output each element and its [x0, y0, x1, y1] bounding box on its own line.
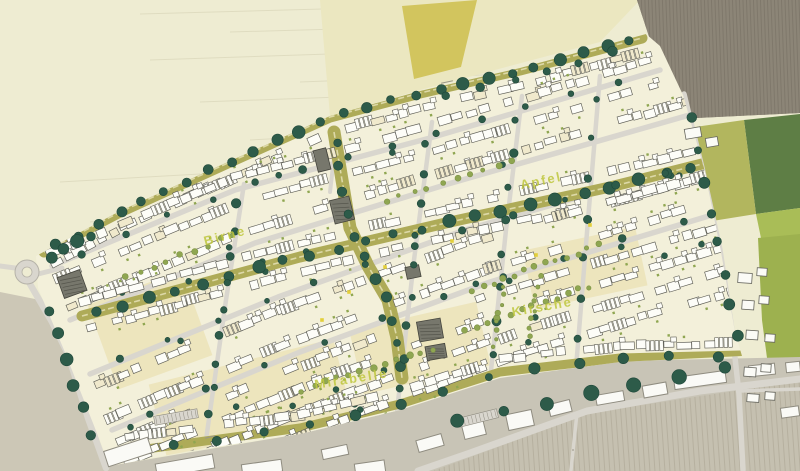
tree: [360, 252, 369, 261]
tree: [117, 207, 127, 217]
building: [499, 353, 513, 362]
tree: [721, 270, 730, 279]
tree: [117, 301, 128, 312]
tree: [362, 261, 368, 267]
tree: [456, 77, 469, 90]
tree: [672, 370, 687, 385]
house: [478, 224, 490, 235]
rowhouse: [655, 341, 659, 351]
tree: [686, 163, 696, 173]
house: [583, 345, 595, 353]
tree: [618, 353, 629, 364]
shrub: [576, 252, 582, 258]
tree: [563, 197, 568, 202]
tree: [522, 104, 528, 110]
tree: [87, 232, 96, 241]
building: [241, 251, 252, 261]
tree: [334, 245, 343, 254]
shrub: [299, 390, 304, 395]
house: [224, 419, 234, 428]
tree: [292, 126, 305, 139]
tree: [618, 235, 626, 243]
rowhouse: [646, 341, 650, 351]
tree: [554, 54, 566, 66]
shrub: [491, 345, 495, 349]
shrub: [536, 285, 540, 289]
shrub: [575, 286, 580, 291]
building: [556, 346, 566, 355]
tree: [626, 378, 640, 392]
shrub: [418, 351, 423, 356]
roundabout: [15, 260, 39, 284]
village-building: [765, 334, 776, 343]
tree: [574, 335, 581, 342]
building: [636, 340, 646, 349]
rowhouse: [715, 338, 719, 348]
house-wing: [553, 106, 560, 112]
tree: [60, 353, 73, 366]
tree: [361, 237, 369, 245]
house: [179, 425, 194, 434]
building: [379, 247, 390, 257]
shrub: [500, 303, 503, 306]
rowhouse: [608, 343, 613, 353]
tree: [713, 352, 723, 362]
tree: [387, 96, 395, 104]
tree: [136, 197, 145, 206]
garden: [279, 407, 282, 410]
building: [583, 345, 595, 353]
tree: [412, 232, 418, 238]
tree: [334, 161, 343, 170]
village-building: [738, 273, 753, 284]
tree: [170, 287, 179, 296]
tree: [370, 274, 381, 285]
tree: [510, 149, 519, 158]
tree: [612, 181, 620, 189]
house: [636, 340, 646, 349]
garden: [565, 171, 568, 174]
house-wing: [305, 403, 312, 409]
tree: [224, 279, 231, 286]
tree: [123, 231, 130, 238]
house: [556, 346, 566, 355]
masterplan-canvas: BirneApfelKirscheMirabelle: [0, 0, 800, 471]
shrub: [543, 259, 549, 265]
house-wing: [468, 193, 474, 199]
shrub: [441, 181, 446, 186]
tree: [479, 116, 486, 123]
tree: [299, 166, 307, 174]
house-wing: [555, 67, 562, 73]
village-building: [705, 137, 718, 148]
building: [521, 145, 531, 155]
tree: [260, 428, 268, 436]
shrub: [501, 292, 506, 297]
shrub: [539, 273, 544, 278]
building: [692, 342, 700, 349]
garden: [267, 410, 270, 413]
shrub: [564, 256, 569, 261]
tree: [418, 226, 426, 234]
play-area-dot: [320, 318, 324, 322]
commercial-building: [786, 361, 800, 372]
shrub: [396, 194, 400, 198]
tree: [78, 402, 89, 413]
tree: [509, 212, 517, 220]
tree: [147, 411, 154, 418]
tree: [67, 380, 79, 392]
house: [692, 342, 700, 349]
tree: [707, 210, 716, 219]
tree: [53, 328, 64, 339]
building: [513, 353, 526, 362]
tree: [505, 184, 511, 190]
tree: [719, 362, 731, 374]
play-area-dot: [588, 223, 592, 227]
shrub: [163, 260, 168, 265]
shrub: [587, 286, 591, 290]
house: [241, 251, 252, 261]
tree: [339, 108, 348, 117]
shrub: [512, 274, 517, 279]
rowhouse: [724, 337, 728, 347]
tree: [350, 232, 359, 241]
shrub: [481, 168, 485, 172]
house-wing: [438, 230, 444, 236]
garden: [613, 208, 616, 211]
village-building: [759, 296, 770, 305]
shrub: [527, 326, 531, 330]
village-building: [757, 268, 768, 277]
tree: [198, 279, 209, 290]
tree: [215, 331, 223, 339]
tree: [412, 91, 421, 100]
tree: [433, 130, 440, 137]
house: [342, 255, 354, 266]
building: [620, 342, 634, 350]
road: [740, 389, 800, 391]
shrub: [531, 263, 537, 269]
tree: [512, 117, 518, 123]
shrub: [455, 175, 461, 181]
tree: [70, 234, 83, 247]
tree: [543, 68, 550, 75]
village-building: [746, 330, 759, 340]
tree: [417, 200, 425, 208]
house-wing: [243, 413, 249, 419]
tree: [316, 118, 325, 127]
house: [125, 433, 135, 441]
shrub: [474, 325, 480, 331]
house-wing: [493, 189, 499, 195]
building: [705, 341, 716, 348]
tree: [608, 46, 618, 56]
tree: [615, 79, 622, 86]
shrub: [431, 348, 436, 353]
tree: [389, 230, 397, 238]
tree: [226, 252, 234, 260]
shrub: [413, 189, 417, 193]
tree: [724, 299, 735, 310]
building: [125, 433, 135, 441]
village-building: [765, 392, 776, 401]
house-wing: [280, 268, 287, 274]
village-building: [761, 364, 772, 373]
house: [379, 247, 390, 257]
tree: [410, 262, 417, 269]
tree: [469, 210, 481, 222]
shrub: [139, 270, 143, 274]
tree: [476, 83, 485, 92]
tree: [483, 72, 495, 84]
house-wing: [671, 337, 677, 342]
tree: [502, 216, 510, 224]
tree: [411, 243, 418, 250]
tree: [165, 337, 170, 342]
shrub: [467, 172, 472, 177]
tree: [265, 298, 270, 303]
house-wing: [608, 62, 615, 68]
shrub: [496, 163, 502, 169]
tree: [490, 351, 497, 358]
tree: [577, 295, 585, 303]
house-wing: [653, 77, 660, 83]
shrub: [192, 249, 198, 255]
rowhouse: [599, 344, 604, 354]
tree: [499, 406, 509, 416]
tree: [248, 147, 259, 158]
tree: [310, 279, 317, 286]
house-wing: [638, 155, 645, 161]
tree: [221, 307, 228, 314]
tree: [252, 179, 259, 186]
village-building: [742, 300, 755, 310]
tree: [442, 92, 450, 100]
house: [499, 353, 513, 362]
garden: [683, 336, 685, 338]
tree: [306, 421, 314, 429]
tree: [575, 358, 585, 368]
tree: [345, 154, 352, 161]
play-area-dot: [347, 290, 351, 294]
house: [311, 235, 322, 244]
house-wing: [675, 174, 682, 180]
tree: [458, 227, 465, 234]
house: [461, 198, 473, 208]
tree: [438, 387, 448, 397]
tree: [322, 339, 328, 345]
shrub: [521, 267, 526, 272]
house-wing: [574, 199, 580, 205]
tree: [512, 77, 519, 84]
tree: [387, 317, 396, 326]
tree: [422, 140, 429, 147]
tree: [45, 307, 54, 316]
tree: [451, 414, 464, 427]
tree: [204, 410, 212, 418]
tree: [713, 237, 722, 246]
play-area-dot: [450, 239, 454, 243]
tree: [443, 214, 456, 227]
house-wing: [430, 97, 436, 103]
tree: [524, 198, 537, 211]
garden: [667, 334, 669, 336]
building: [607, 165, 617, 175]
tree: [584, 385, 599, 400]
tree: [588, 135, 594, 141]
tree: [540, 397, 553, 410]
tree: [116, 355, 123, 362]
tree: [253, 260, 266, 273]
tree: [92, 307, 102, 317]
tree: [78, 251, 86, 259]
house-wing: [392, 109, 399, 115]
tree: [699, 177, 710, 188]
tree: [498, 251, 505, 258]
tree: [46, 252, 57, 263]
tree: [583, 215, 591, 223]
tree: [680, 218, 687, 225]
tree: [334, 139, 342, 147]
tree: [212, 361, 219, 368]
tree: [262, 362, 268, 368]
house: [521, 145, 531, 155]
tree: [396, 385, 403, 392]
house-wing: [230, 414, 236, 420]
tree: [216, 318, 222, 324]
shrub: [584, 246, 588, 250]
shrub: [495, 338, 499, 342]
house-wing: [217, 285, 224, 291]
shrub: [394, 357, 399, 362]
shrub: [509, 158, 515, 164]
house: [274, 412, 289, 422]
house: [398, 108, 408, 118]
house-wing: [408, 150, 415, 156]
tree: [210, 197, 216, 203]
tree: [389, 143, 396, 150]
tree: [381, 292, 391, 302]
tree: [143, 291, 155, 303]
house: [166, 428, 176, 436]
shrub: [494, 319, 498, 323]
tree: [625, 37, 633, 45]
tree: [664, 351, 673, 360]
tree: [228, 158, 237, 167]
tree: [350, 410, 361, 421]
tree: [182, 178, 191, 187]
shrub: [122, 274, 128, 280]
shrub: [492, 282, 497, 287]
rowhouse: [650, 341, 654, 351]
shrub: [424, 186, 429, 191]
house-wing: [354, 137, 361, 143]
house: [531, 214, 543, 224]
tree: [732, 330, 743, 341]
tree: [362, 102, 373, 113]
tree: [694, 147, 701, 154]
shrub: [462, 327, 468, 333]
shrub: [481, 283, 487, 289]
masterplan-svg: BirneApfelKirscheMirabelle: [0, 0, 800, 471]
tree: [568, 91, 574, 97]
shrub: [469, 289, 474, 294]
tree: [337, 187, 347, 197]
building: [541, 350, 554, 357]
tree: [394, 339, 401, 346]
tree: [548, 193, 561, 206]
play-area-dot: [534, 253, 538, 257]
tree: [409, 294, 415, 300]
house: [620, 342, 634, 350]
house: [677, 342, 692, 349]
tree: [584, 175, 592, 183]
house-wing: [455, 198, 461, 204]
shrub: [501, 285, 505, 289]
commercial-building: [780, 406, 799, 418]
tree: [164, 212, 169, 217]
tree: [58, 243, 69, 254]
building: [531, 214, 543, 224]
play-area-dot: [383, 265, 387, 269]
tree: [687, 113, 697, 123]
tree: [575, 60, 582, 67]
house: [705, 341, 716, 348]
house-wing: [645, 52, 652, 58]
house: [541, 350, 554, 357]
tree: [278, 255, 287, 264]
house: [513, 353, 526, 362]
house-wing: [332, 399, 339, 405]
shrub: [485, 320, 490, 325]
village-building: [744, 367, 757, 377]
tree: [529, 363, 540, 374]
tree: [441, 293, 448, 300]
rowhouse: [660, 340, 664, 350]
shrub: [152, 265, 157, 270]
building: [179, 425, 194, 434]
shrub: [596, 241, 602, 247]
rowhouse: [719, 337, 723, 347]
shrub: [528, 334, 533, 339]
rowhouse: [604, 343, 609, 353]
shrub: [533, 294, 537, 298]
tree: [396, 399, 406, 409]
tree: [420, 171, 428, 179]
tree: [485, 374, 492, 381]
house: [607, 165, 617, 175]
tree: [344, 210, 352, 218]
tree: [86, 431, 96, 441]
tree: [159, 188, 167, 196]
tree: [272, 134, 283, 145]
tree: [662, 170, 669, 177]
tree: [379, 315, 386, 322]
tree: [402, 322, 410, 330]
tree: [304, 251, 314, 261]
shrub: [177, 252, 183, 258]
tree: [203, 165, 213, 175]
shrub: [553, 259, 557, 263]
shrub: [384, 199, 390, 205]
tree: [94, 219, 104, 229]
village-building: [747, 394, 760, 403]
tree: [632, 173, 645, 186]
tree: [212, 436, 221, 445]
tree: [169, 440, 178, 449]
tree: [594, 96, 600, 102]
